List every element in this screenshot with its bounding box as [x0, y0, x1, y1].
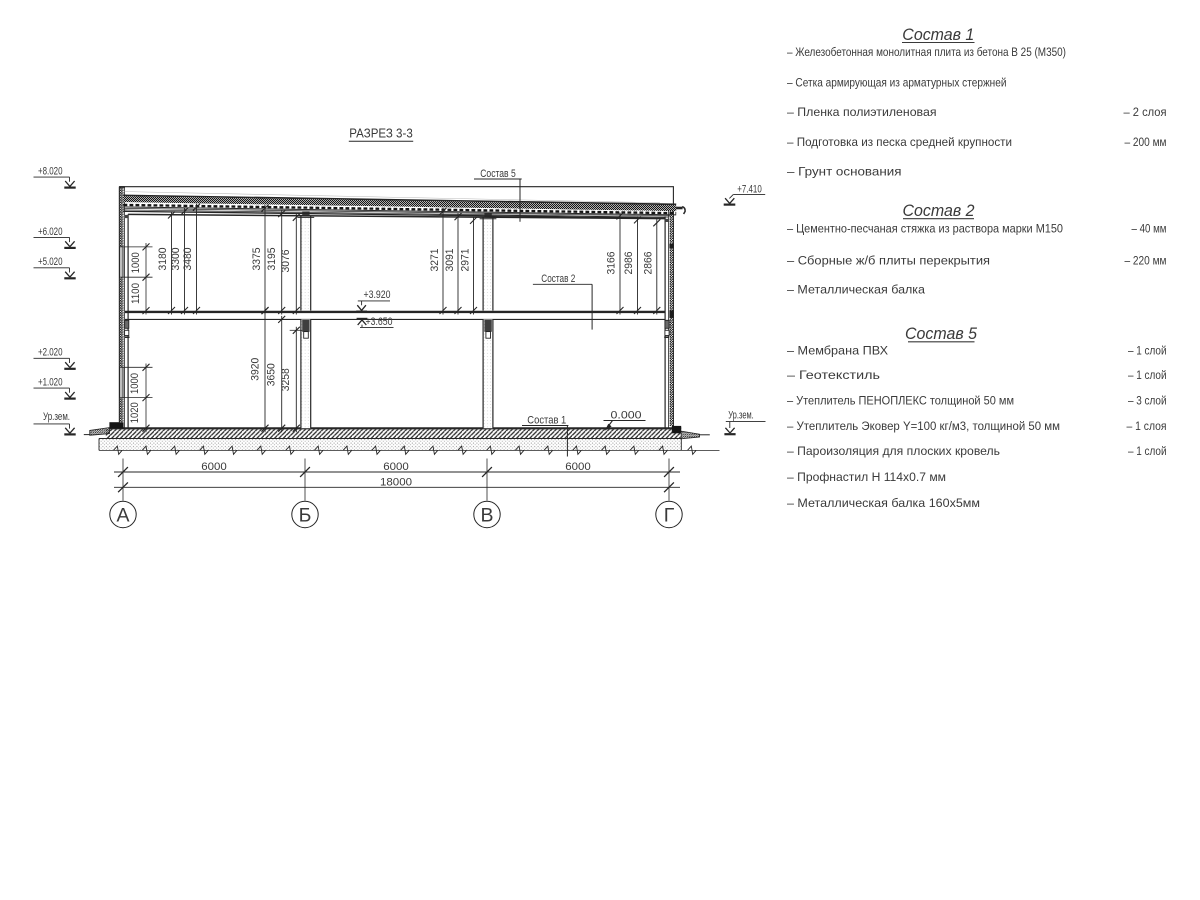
svg-text:3195: 3195: [266, 248, 278, 271]
svg-text:1000: 1000: [129, 373, 141, 394]
svg-text:– Железобетонная монолитная п: – Железобетонная монолитная плита из бет…: [787, 45, 1066, 59]
svg-text:А: А: [116, 505, 129, 527]
svg-text:– 1 слой: – 1 слой: [1128, 344, 1167, 358]
svg-text:– Мембрана ПВХ: – Мембрана ПВХ: [787, 344, 888, 358]
svg-text:– Сетка армирующая из арматурн: – Сетка армирующая из арматурных стержне…: [787, 76, 1007, 90]
svg-text:РАЗРЕЗ 3-3: РАЗРЕЗ 3-3: [349, 126, 413, 141]
svg-text:– Утеплитель ПЕНОПЛЕКС толщино: – Утеплитель ПЕНОПЛЕКС толщиной 50 мм: [787, 393, 1014, 407]
svg-text:Состав 1: Состав 1: [527, 414, 566, 426]
svg-text:3258: 3258: [280, 368, 292, 391]
svg-text:+2.020: +2.020: [38, 347, 63, 359]
svg-text:– 3 слой: – 3 слой: [1128, 393, 1167, 407]
svg-text:6000: 6000: [565, 461, 591, 473]
svg-text:1100: 1100: [130, 283, 142, 304]
svg-text:3650: 3650: [266, 363, 278, 386]
svg-text:Состав 2: Состав 2: [541, 273, 575, 285]
svg-text:3920: 3920: [250, 358, 262, 381]
svg-text:– Металлическая балка 160х5мм: – Металлическая балка 160х5мм: [787, 496, 980, 510]
svg-text:+6.020: +6.020: [38, 226, 63, 238]
svg-text:– Утеплитель Эковер Y=100 кг/м: – Утеплитель Эковер Y=100 кг/м3, толщино…: [787, 419, 1060, 433]
svg-text:+1.020: +1.020: [38, 377, 63, 389]
svg-text:Состав 5: Состав 5: [905, 324, 978, 343]
svg-text:3271: 3271: [429, 249, 441, 272]
svg-text:– 1 слой: – 1 слой: [1128, 368, 1167, 382]
svg-text:– 1 слоя: – 1 слоя: [1127, 419, 1167, 433]
svg-text:Состав 5: Состав 5: [480, 168, 516, 180]
svg-text:3180: 3180: [157, 248, 169, 271]
svg-text:– Пленка полиэтиленовая: – Пленка полиэтиленовая: [787, 105, 937, 119]
svg-text:18000: 18000: [380, 476, 412, 488]
svg-text:– Сборные ж/б плиты перекрытия: – Сборные ж/б плиты перекрытия: [787, 254, 990, 268]
svg-text:3480: 3480: [182, 248, 194, 271]
svg-text:В: В: [480, 505, 493, 527]
svg-text:Состав 1: Состав 1: [902, 25, 974, 44]
svg-text:2971: 2971: [459, 249, 471, 272]
svg-text:3300: 3300: [170, 248, 182, 271]
svg-text:– Подготовка из песка средней: – Подготовка из песка средней крупности: [787, 135, 1012, 149]
svg-text:3076: 3076: [280, 250, 292, 273]
svg-text:– 2 слоя: – 2 слоя: [1124, 105, 1167, 119]
svg-text:– 40 мм: – 40 мм: [1132, 221, 1167, 235]
svg-text:– Металлическая балка: – Металлическая балка: [787, 283, 925, 297]
svg-text:6000: 6000: [383, 461, 409, 473]
svg-text:+3.650: +3.650: [366, 316, 393, 328]
svg-text:+7.410: +7.410: [737, 183, 762, 195]
svg-text:3375: 3375: [251, 248, 263, 271]
svg-text:2866: 2866: [642, 252, 654, 275]
svg-text:3166: 3166: [605, 252, 617, 275]
svg-text:+8.020: +8.020: [38, 166, 63, 178]
svg-text:6000: 6000: [201, 461, 227, 473]
svg-text:2986: 2986: [623, 252, 635, 275]
svg-text:Б: Б: [299, 505, 312, 527]
svg-text:3091: 3091: [444, 249, 456, 272]
svg-text:– Грунт основания: – Грунт основания: [787, 164, 902, 178]
svg-text:+5.020: +5.020: [38, 256, 63, 268]
svg-text:– Цементно-песчаная стяжка из: – Цементно-песчаная стяжка из раствора м…: [787, 221, 1063, 235]
svg-text:– 200 мм: – 200 мм: [1125, 135, 1167, 149]
svg-text:– Геотекстиль: – Геотекстиль: [787, 368, 880, 382]
svg-text:Состав 2: Состав 2: [903, 201, 976, 220]
svg-text:Ур.зем.: Ур.зем.: [43, 411, 70, 423]
svg-text:– Пароизоляция для плоских кро: – Пароизоляция для плоских кровель: [787, 444, 1000, 458]
svg-text:– Профнастил Н 114х0.7 мм: – Профнастил Н 114х0.7 мм: [787, 470, 946, 484]
svg-text:1020: 1020: [129, 402, 141, 423]
svg-text:– 220 мм: – 220 мм: [1125, 254, 1167, 268]
svg-text:Ур.зем.: Ур.зем.: [728, 409, 754, 421]
svg-text:+3.920: +3.920: [364, 289, 391, 301]
svg-text:Г: Г: [664, 505, 675, 527]
svg-text:– 1 слой: – 1 слой: [1128, 444, 1167, 458]
svg-text:1000: 1000: [130, 252, 142, 273]
svg-text:0.000: 0.000: [611, 409, 642, 421]
